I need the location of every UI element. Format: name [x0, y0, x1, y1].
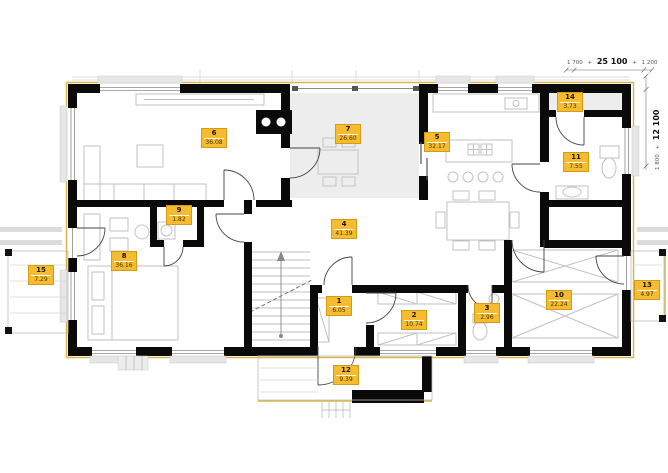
room-label-8: 8 36.16	[111, 251, 137, 271]
room-number: 14	[560, 94, 580, 103]
room-area: 1.82	[169, 217, 189, 223]
room-area: 2.96	[477, 315, 497, 321]
room-area: 10.74	[404, 322, 424, 328]
room-area: 36.08	[204, 140, 224, 146]
room-area: 3.73	[560, 104, 580, 110]
room-number: 15	[31, 267, 51, 276]
room-label-4: 4 41.39	[331, 219, 357, 239]
room-label-5: 5 32.17	[424, 132, 450, 152]
dimension-vertical: 1 800 + 12 100	[652, 109, 661, 170]
room-label-11: 11 7.55	[563, 152, 589, 172]
room-number: 4	[334, 221, 354, 230]
room-label-9: 9 1.82	[166, 205, 192, 225]
room-area: 41.39	[334, 231, 354, 237]
room-number: 13	[637, 282, 657, 291]
room-area: 6.05	[329, 308, 349, 314]
room-label-12: 12 9.39	[333, 365, 359, 385]
room-area: 26.60	[338, 136, 358, 142]
room-number: 2	[404, 312, 424, 321]
room-number: 3	[477, 305, 497, 314]
room-area: 4.97	[637, 292, 657, 298]
room-area: 7.29	[31, 277, 51, 283]
floor-plan-canvas: 1 700 + 25 100 + 1 200 1 800 + 12 100 1 …	[0, 0, 668, 473]
room-label-10: 10 22.24	[546, 290, 572, 310]
room-area: 7.55	[566, 164, 586, 170]
room-area: 32.17	[427, 144, 447, 150]
staircase	[250, 251, 312, 340]
room-number: 7	[338, 126, 358, 135]
room-label-13: 13 4.97	[634, 280, 660, 300]
room-number: 9	[169, 207, 189, 216]
room-number: 8	[114, 253, 134, 262]
room-label-14: 14 3.73	[557, 92, 583, 112]
room-number: 11	[566, 154, 586, 163]
room-label-1: 1 6.05	[326, 296, 352, 316]
room-label-7: 7 26.60	[335, 124, 361, 144]
room-number: 5	[427, 134, 447, 143]
room-label-3: 3 2.96	[474, 303, 500, 323]
room-label-6: 6 36.08	[201, 128, 227, 148]
room-number: 1	[329, 298, 349, 307]
room-label-15: 15 7.29	[28, 265, 54, 285]
room-area: 9.39	[336, 377, 356, 383]
room-number: 10	[549, 292, 569, 301]
room-area: 22.24	[549, 302, 569, 308]
room-number: 12	[336, 367, 356, 376]
room-number: 6	[204, 130, 224, 139]
room-label-2: 2 10.74	[401, 310, 427, 330]
dimension-horizontal: 1 700 + 25 100 + 1 200	[567, 57, 658, 66]
room-area: 36.16	[114, 263, 134, 269]
